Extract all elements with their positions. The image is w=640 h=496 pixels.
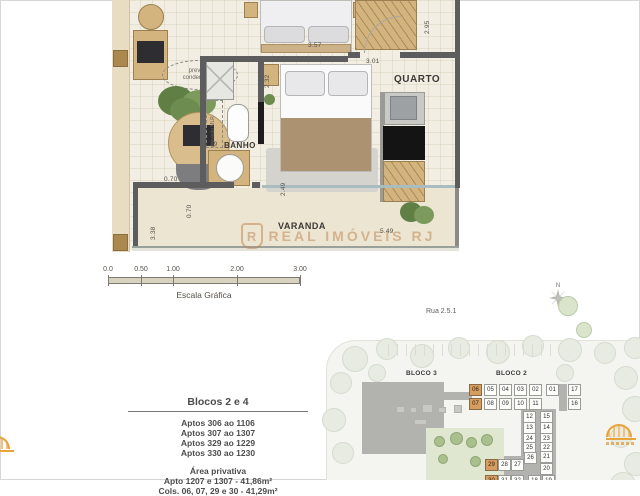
private-area-list: Apto 1207 e 1307 - 41,86m²Cols. 06, 07, …: [118, 476, 318, 496]
unit-cell-20: 20: [540, 463, 553, 475]
pillow: [308, 26, 349, 43]
private-area-title: Área privativa: [118, 466, 318, 476]
sunrise-icon: [606, 424, 632, 437]
unit-cell-31: 31: [498, 475, 511, 480]
washer-note: previsão MLR: [210, 116, 216, 147]
unit-cell-17: 17: [568, 384, 581, 396]
scale-tick: [173, 275, 174, 286]
unit-cell-09: 09: [499, 398, 512, 410]
pillow: [328, 71, 368, 96]
pillow: [285, 71, 325, 96]
apartment-list: Aptos 306 ao 1106Aptos 307 ao 1307Aptos …: [118, 418, 318, 458]
pillar: [113, 234, 128, 251]
divider: [128, 411, 308, 412]
wall: [200, 182, 234, 188]
unit-cell-16: 16: [568, 398, 581, 410]
unit-cell-28: 28: [498, 459, 511, 471]
agency-logo-text: [606, 442, 634, 445]
bath-sink: [216, 154, 244, 182]
nightstand: [244, 2, 258, 18]
unit-cell-06: 06: [469, 384, 482, 396]
wall: [348, 52, 360, 58]
flyer-page: { "floorplan": { "watermark_text": "REAL…: [0, 0, 640, 480]
unit-cell-11: 11: [529, 398, 542, 410]
scale-tick: [237, 275, 238, 286]
wall: [258, 56, 264, 102]
unit-cell-19: 19: [542, 475, 555, 480]
scale-caption: Escala Gráfica: [108, 290, 300, 300]
kitchen-cabinet: [383, 161, 425, 202]
balcony-glass-door: [262, 185, 455, 188]
unit-cell-07: 07: [469, 398, 482, 410]
neighbor-wall-strip: [112, 0, 130, 252]
pillow: [264, 26, 305, 43]
info-title: Blocos 2 e 4: [118, 396, 318, 408]
scale-tick: [108, 275, 109, 286]
sunrise-icon: [0, 436, 10, 449]
info-block: Blocos 2 e 4 Aptos 306 ao 1106Aptos 307 …: [118, 396, 318, 496]
unit-cell-01: 01: [546, 384, 559, 396]
unit-cell-04: 04: [499, 384, 512, 396]
sunrise-base: [606, 438, 636, 440]
unit-cell-27: 27: [511, 459, 524, 471]
washer-space: previsão MLR: [206, 100, 223, 148]
unit-cell-02: 02: [529, 384, 542, 396]
unit-cell-03: 03: [514, 384, 527, 396]
varanda-railing: [132, 246, 459, 251]
wall: [455, 0, 460, 188]
apartment-range-line: Aptos 330 ao 1230: [118, 448, 318, 458]
scale-tick-label: 0.50: [126, 266, 156, 273]
graphic-scale: 0.00.501.002.003.00 Escala Gráfica: [108, 266, 308, 304]
stool: [138, 4, 164, 30]
wall: [200, 56, 206, 188]
balcony-end-wall: [455, 188, 459, 246]
toilet: [227, 104, 249, 142]
bed-frame: [261, 44, 351, 53]
unit-cell-29: 29: [485, 459, 498, 471]
shower: [206, 58, 234, 100]
scale-tick: [141, 275, 142, 286]
private-area-line: Apto 1207 e 1307 - 41,86m²: [118, 476, 318, 486]
plant-icon: [414, 206, 434, 224]
laptop: [137, 41, 164, 63]
scale-tick-label: 3.00: [285, 266, 315, 273]
unit-cell-08: 08: [484, 398, 497, 410]
unit-cell-30: 30: [485, 475, 498, 480]
bloco2-grid: 0605040302011707080910111612151314242325…: [318, 280, 640, 480]
floorplan: previsão condensador previsão MLR R: [112, 0, 460, 258]
private-area-line: Cols. 06, 07, 29 e 30 - 41,29m²: [118, 486, 318, 496]
unit-cell-21: 21: [540, 451, 553, 463]
agency-logo: [606, 424, 636, 445]
agency-logo-partial: [0, 436, 14, 452]
wall: [138, 182, 202, 188]
cooktop: [383, 126, 425, 160]
wall: [200, 56, 348, 62]
unit-cell-18: 18: [528, 475, 541, 480]
pillar: [113, 50, 128, 67]
nightstand: [262, 64, 279, 86]
sunrise-base: [0, 450, 14, 452]
plant-icon: [264, 94, 275, 105]
kitchen-sink: [390, 96, 417, 120]
scale-tick-label: 1.00: [158, 266, 188, 273]
site-plan: Rua 2.5.1 N BLOCO 3 BLOCO 2 060504030201…: [318, 280, 640, 480]
apartment-range-line: Aptos 306 ao 1106: [118, 418, 318, 428]
wall: [252, 182, 260, 188]
apartment-range-line: Aptos 329 ao 1229: [118, 438, 318, 448]
tv-panel: [258, 100, 264, 144]
wall: [400, 52, 460, 58]
scale-bar: [108, 277, 300, 284]
unit-cell-10: 10: [514, 398, 527, 410]
scale-tick: [300, 275, 301, 286]
bed-blanket: [281, 118, 371, 171]
scale-tick-label: 2.00: [222, 266, 252, 273]
apartment-range-line: Aptos 307 ao 1307: [118, 428, 318, 438]
unit-cell-32: 32: [511, 475, 524, 480]
scale-tick-label: 0.0: [93, 266, 123, 273]
unit-cell-26: 26: [524, 452, 537, 464]
unit-cell-05: 05: [484, 384, 497, 396]
wall: [133, 182, 138, 246]
